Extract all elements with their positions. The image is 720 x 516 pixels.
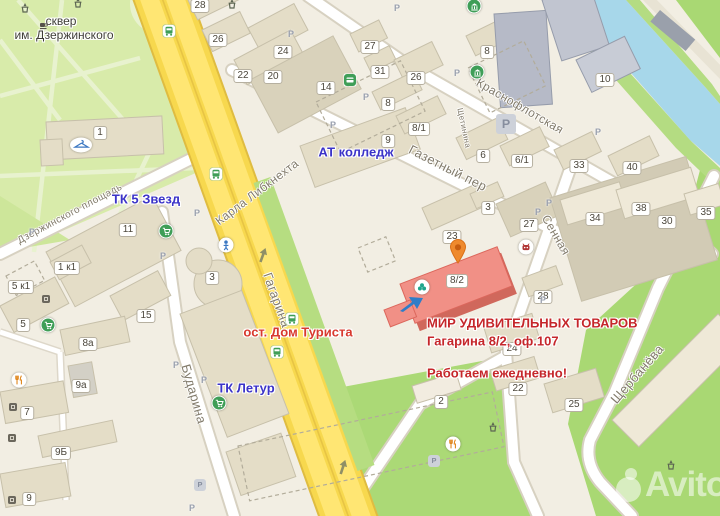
map-annotation: ост. Дом Туриста: [243, 325, 352, 340]
street-label: Щербанёва: [607, 342, 666, 407]
map-annotation: АТ колледж: [318, 145, 393, 160]
building-number-badge: 3: [481, 201, 495, 215]
building-number-badge: 26: [208, 33, 227, 47]
map-annotation: ТК Летур: [217, 381, 274, 396]
building-number-badge: 3: [205, 271, 219, 285]
building-number-badge: 33: [569, 159, 588, 173]
map-annotation: сквер: [46, 14, 77, 28]
building-number-badge: 6: [476, 149, 490, 163]
building-number-badge: 34: [585, 212, 604, 226]
parking-lot-icon[interactable]: Р: [194, 479, 206, 491]
building-number-badge: 9а: [71, 379, 90, 393]
building-number-badge: 25: [564, 398, 583, 412]
parking-mark: Р: [546, 198, 552, 208]
museum-icon[interactable]: [467, 0, 482, 14]
building-number-badge: 9Б: [51, 446, 71, 460]
restaurant-icon[interactable]: [12, 373, 27, 388]
arrow-icon: [399, 293, 425, 313]
parking-mark: Р: [454, 68, 460, 78]
museum-icon[interactable]: [470, 65, 485, 80]
road-arrow-icon: [256, 246, 270, 263]
map-overlay: 128262422201427312688/1981066/13340111 к…: [0, 0, 720, 516]
parking-mark: Р: [194, 208, 200, 218]
parking-mark: Р: [201, 375, 207, 385]
parking-lot-icon[interactable]: Р: [496, 114, 516, 134]
map-canvas[interactable]: 128262422201427312688/1981066/13340111 к…: [0, 0, 720, 516]
building-number-badge: 1: [93, 126, 107, 140]
building-number-badge: 30: [657, 215, 676, 229]
building-number-badge: 28: [190, 0, 209, 13]
street-label: Щетинина: [455, 107, 472, 149]
street-label: Краснофлотская: [474, 75, 566, 136]
hanger-icon[interactable]: [70, 138, 92, 153]
parking-mark: Р: [189, 503, 195, 513]
building-number-badge: 1 к1: [54, 261, 80, 275]
avito-logo-dot-small: [625, 468, 637, 480]
bus-icon[interactable]: [163, 25, 176, 38]
store-icon[interactable]: [415, 280, 430, 295]
person-icon[interactable]: [219, 238, 234, 253]
parking-mark: Р: [394, 3, 400, 13]
building-number-badge: 9: [22, 492, 36, 506]
cafe-icon[interactable]: [39, 21, 49, 31]
building-number-badge: 22: [233, 69, 252, 83]
parking-mark: Р: [330, 120, 336, 130]
monument-icon[interactable]: [226, 0, 238, 10]
monument-icon[interactable]: [487, 421, 499, 433]
building-number-badge: 7: [20, 406, 34, 420]
small-poi-icon: [42, 295, 50, 303]
cart-icon[interactable]: [159, 224, 174, 239]
building-number-badge: 8/2: [446, 274, 468, 288]
poi-icon[interactable]: [519, 240, 534, 255]
building-number-badge: 8/1: [408, 122, 430, 136]
bus-icon[interactable]: [210, 168, 223, 181]
street-label: Сенная: [539, 212, 573, 257]
cart-icon[interactable]: [212, 396, 227, 411]
building-number-badge: 40: [622, 161, 641, 175]
map-annotation: Гагарина 8/2, оф.107: [427, 334, 559, 349]
pin-icon: [449, 239, 468, 264]
small-poi-icon: [8, 496, 16, 504]
parking-mark: Р: [363, 92, 369, 102]
building-number-badge: 8: [480, 45, 494, 59]
street-label: Карла Либкнехта: [213, 156, 302, 228]
parking-mark: Р: [160, 251, 166, 261]
building-number-badge: 38: [631, 202, 650, 216]
avito-wordmark: Avito: [645, 467, 720, 502]
small-poi-icon: [9, 403, 17, 411]
restaurant-icon[interactable]: [446, 437, 461, 452]
building-number-badge: 31: [370, 65, 389, 79]
building-number-badge: 8: [381, 97, 395, 111]
parking-mark: Р: [595, 127, 601, 137]
building-number-badge: 11: [119, 223, 137, 237]
building-number-badge: 27: [519, 218, 538, 232]
building-number-badge: 24: [273, 45, 292, 59]
avito-logo-dot-big: [616, 477, 641, 502]
building-number-badge: 8а: [78, 337, 97, 351]
building-number-badge: 5: [16, 318, 30, 332]
monument-icon[interactable]: [19, 2, 31, 14]
parking-mark: Р: [535, 207, 541, 217]
bus-icon[interactable]: [286, 313, 299, 326]
parking-mark: Р: [29, 227, 35, 237]
building-number-badge: 20: [263, 70, 282, 84]
monument-icon[interactable]: [72, 0, 84, 9]
building-number-badge: 10: [595, 73, 614, 87]
map-annotation: им. Дзержинского: [14, 28, 113, 42]
street-label: Бударина: [178, 363, 209, 426]
parking-lot-icon[interactable]: Р: [428, 455, 440, 467]
building-number-badge: 5 к1: [8, 280, 34, 294]
parking-mark: Р: [288, 29, 294, 39]
map-annotation: МИР УДИВИТЕЛЬНЫХ ТОВАРОВ: [427, 316, 638, 331]
building-number-badge: 14: [316, 81, 335, 95]
building-number-badge: 26: [406, 71, 425, 85]
map-annotation: Работаем ежедневно!: [427, 366, 567, 381]
road-arrow-icon: [336, 458, 349, 475]
building-number-badge: 35: [696, 206, 715, 220]
building-number-badge: 22: [508, 382, 527, 396]
building-number-badge: 15: [136, 309, 155, 323]
map-annotation: ТК 5 Звезд: [112, 192, 180, 207]
cart-icon[interactable]: [41, 318, 56, 333]
parking-mark: Р: [173, 360, 179, 370]
parking-mark: Р: [540, 295, 546, 305]
avito-watermark: Avito: [610, 462, 720, 514]
building-number-badge: 2: [434, 395, 448, 409]
bus-icon[interactable]: [271, 346, 284, 359]
small-poi-icon: [8, 434, 16, 442]
atm-icon[interactable]: [344, 74, 357, 87]
building-number-badge: 27: [360, 40, 379, 54]
building-number-badge: 6/1: [511, 154, 533, 168]
